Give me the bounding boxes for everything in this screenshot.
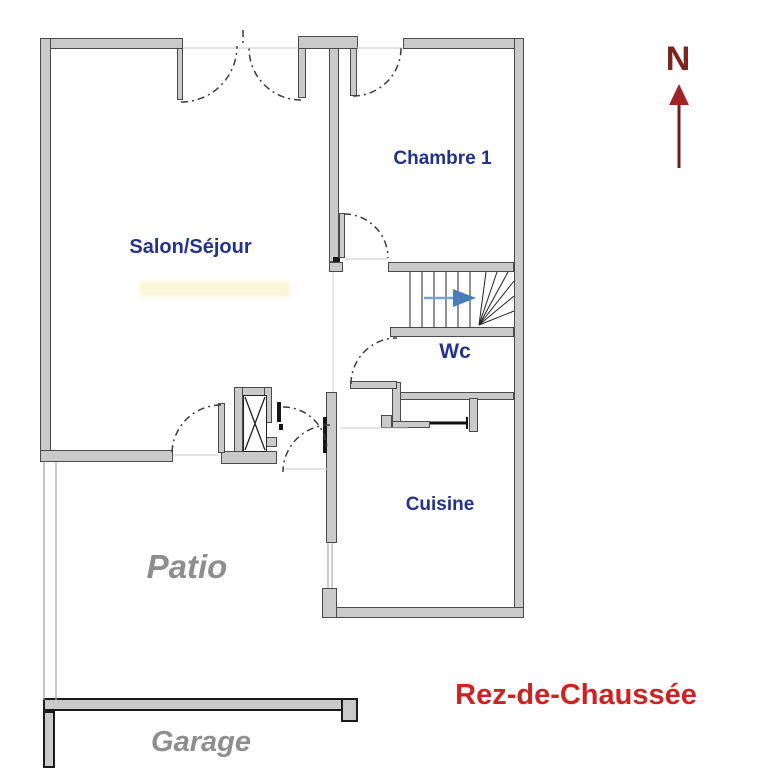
wall-closet-corner xyxy=(381,415,392,428)
wall-stairwell-bottom xyxy=(390,327,514,337)
wall-cuisine-left xyxy=(326,392,337,543)
chimney-left xyxy=(234,387,243,453)
room-label-cuisine: Cuisine xyxy=(394,494,486,516)
door-strike-tick-1 xyxy=(277,402,281,422)
wall-cuisine-bottom xyxy=(322,607,524,618)
garage-wall-left xyxy=(43,711,55,768)
cuisine-door-leaf xyxy=(323,417,327,453)
floor-title: Rez-de-Chaussée xyxy=(430,679,722,712)
chambre-lower-door-leaf xyxy=(339,213,345,258)
wall-top-left xyxy=(40,38,183,49)
wall-cuisine-left-corner xyxy=(322,588,337,618)
wall-stairwell-top xyxy=(388,262,514,272)
wall-partition-salon-chambre xyxy=(329,48,339,262)
floor-plan: Salon/Séjour Chambre 1 Wc Cuisine Patio … xyxy=(0,0,762,768)
french-door-right-leaf xyxy=(298,48,306,98)
wall-left xyxy=(40,38,51,462)
staircase xyxy=(410,272,514,327)
salon-patio-door-leaf xyxy=(218,403,225,453)
closet-door-line xyxy=(430,417,467,429)
wall-top-chambre xyxy=(403,38,524,49)
wall-closet-right xyxy=(469,398,478,432)
area-label-patio: Patio xyxy=(134,548,240,586)
room-label-salon: Salon/Séjour xyxy=(98,236,283,259)
chambre-top-door-leaf xyxy=(350,48,357,96)
garage-wall-tab xyxy=(341,698,358,722)
wall-right xyxy=(514,38,524,618)
french-door-left-leaf xyxy=(177,48,183,100)
wall-partition-foot xyxy=(329,262,343,272)
garage-wall-top xyxy=(43,698,355,711)
area-label-garage: Garage xyxy=(140,726,262,759)
highlight-smudge xyxy=(140,281,290,297)
wc-door-leaf xyxy=(350,381,397,389)
stair-direction-arrow-icon xyxy=(424,289,476,307)
wall-salon-bottom xyxy=(40,450,173,462)
door-strike-tick-2 xyxy=(279,424,283,430)
room-label-wc: Wc xyxy=(430,340,480,364)
cuisine-window xyxy=(328,543,332,588)
north-arrow-icon xyxy=(669,84,689,168)
wall-top-lintel xyxy=(298,36,358,49)
wall-wc-bottom xyxy=(392,392,514,400)
room-label-chambre1: Chambre 1 xyxy=(385,148,500,170)
north-letter: N xyxy=(660,40,696,79)
wall-closet-bottom xyxy=(392,421,430,428)
chimney-base xyxy=(221,451,277,464)
patio-boundary-lines xyxy=(44,462,56,700)
chimney-duct-x-symbol xyxy=(243,395,267,452)
